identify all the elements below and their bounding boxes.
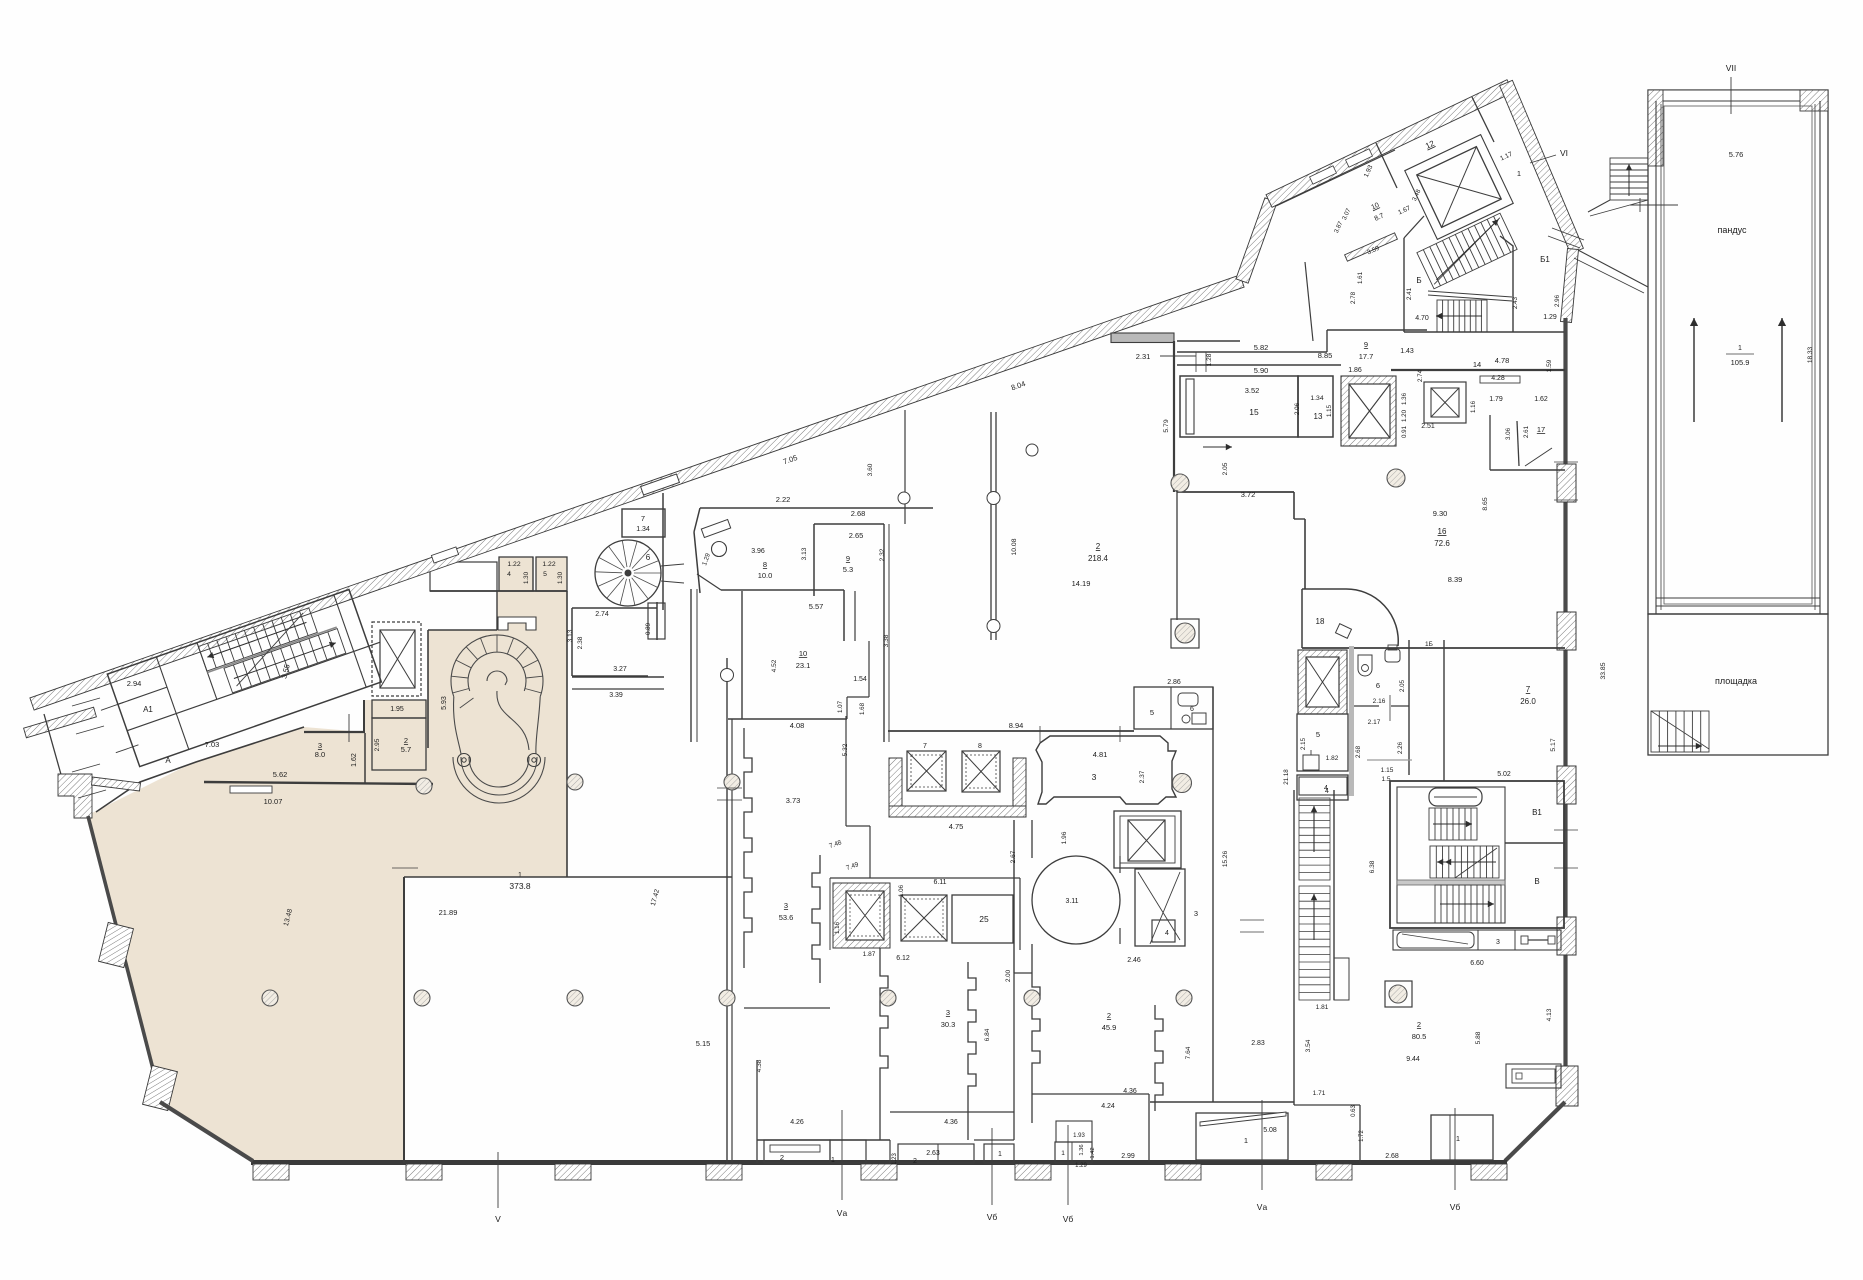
svg-text:1.36: 1.36 — [1401, 392, 1408, 405]
svg-text:5: 5 — [543, 571, 547, 578]
svg-text:2: 2 — [1417, 1020, 1421, 1029]
svg-text:1.06: 1.06 — [898, 884, 905, 897]
svg-text:4.75: 4.75 — [949, 822, 964, 831]
svg-text:3.38: 3.38 — [883, 634, 890, 647]
svg-text:0.89: 0.89 — [645, 622, 652, 635]
svg-text:3.11: 3.11 — [1065, 898, 1078, 905]
svg-text:2: 2 — [780, 1153, 784, 1162]
svg-text:15.26: 15.26 — [1222, 850, 1229, 867]
svg-text:9.44: 9.44 — [1406, 1056, 1420, 1063]
svg-text:4.26: 4.26 — [790, 1119, 804, 1126]
svg-text:1.68: 1.68 — [859, 702, 866, 715]
svg-text:2.65: 2.65 — [849, 531, 864, 540]
svg-text:1.61: 1.61 — [1357, 271, 1364, 284]
svg-text:105.9: 105.9 — [1731, 358, 1750, 367]
svg-text:1.43: 1.43 — [1400, 348, 1414, 355]
svg-text:6.84: 6.84 — [984, 1028, 991, 1041]
svg-text:1.87: 1.87 — [863, 951, 876, 958]
svg-text:4: 4 — [1324, 785, 1328, 792]
svg-text:80.5: 80.5 — [1412, 1032, 1427, 1041]
svg-text:3.13: 3.13 — [567, 629, 574, 642]
svg-text:18: 18 — [1316, 617, 1325, 626]
svg-text:10: 10 — [799, 649, 807, 658]
svg-text:2: 2 — [404, 736, 408, 745]
svg-text:1.71: 1.71 — [1313, 1090, 1326, 1097]
svg-text:4.81: 4.81 — [1093, 750, 1108, 759]
svg-text:14: 14 — [1473, 360, 1481, 369]
svg-text:Vб: Vб — [1450, 1202, 1461, 1212]
svg-text:4.13: 4.13 — [1546, 1008, 1553, 1021]
svg-text:1.62: 1.62 — [351, 753, 358, 767]
svg-text:2.06: 2.06 — [1294, 402, 1301, 415]
svg-text:16: 16 — [1438, 527, 1447, 536]
svg-text:7.64: 7.64 — [1185, 1046, 1192, 1059]
svg-text:В1: В1 — [1532, 808, 1542, 817]
svg-text:72.6: 72.6 — [1434, 539, 1450, 548]
svg-text:1Б: 1Б — [1425, 641, 1433, 648]
svg-text:2.86: 2.86 — [1167, 679, 1181, 686]
svg-text:2.51: 2.51 — [1421, 423, 1435, 430]
svg-text:1.79: 1.79 — [1489, 396, 1503, 403]
svg-text:4.36: 4.36 — [944, 1119, 958, 1126]
svg-text:3: 3 — [946, 1008, 950, 1017]
svg-text:1.30: 1.30 — [557, 571, 564, 584]
svg-text:5.90: 5.90 — [1254, 366, 1269, 375]
svg-text:1.81: 1.81 — [1316, 1004, 1329, 1011]
svg-text:1.16: 1.16 — [834, 921, 841, 934]
svg-text:2.99: 2.99 — [1121, 1153, 1135, 1160]
svg-text:2.63: 2.63 — [926, 1150, 940, 1157]
svg-text:5.3: 5.3 — [843, 565, 853, 574]
svg-text:1.16: 1.16 — [1470, 400, 1477, 413]
svg-text:25: 25 — [979, 914, 989, 924]
svg-text:26.0: 26.0 — [1520, 697, 1536, 706]
svg-text:0.91: 0.91 — [1401, 425, 1408, 438]
svg-text:373.8: 373.8 — [509, 881, 531, 891]
svg-text:2.61: 2.61 — [1523, 425, 1530, 438]
svg-text:3.06: 3.06 — [1505, 427, 1512, 440]
svg-text:8: 8 — [978, 743, 982, 750]
svg-text:1: 1 — [518, 872, 522, 879]
svg-text:2.74: 2.74 — [595, 611, 609, 618]
svg-text:6: 6 — [1376, 681, 1380, 690]
svg-text:2.41: 2.41 — [1406, 287, 1413, 300]
svg-text:6.11: 6.11 — [933, 879, 946, 886]
svg-text:1.23: 1.23 — [892, 1153, 898, 1165]
svg-text:4.08: 4.08 — [790, 721, 805, 730]
svg-text:1.15: 1.15 — [1326, 404, 1333, 417]
svg-text:9: 9 — [846, 554, 850, 563]
svg-text:1: 1 — [998, 1151, 1002, 1158]
svg-text:1.93: 1.93 — [1073, 1133, 1085, 1139]
svg-text:Б1: Б1 — [1540, 255, 1550, 264]
svg-text:6: 6 — [1190, 706, 1194, 713]
svg-text:4.24: 4.24 — [1101, 1103, 1115, 1110]
svg-text:2: 2 — [1107, 1011, 1111, 1020]
svg-text:30.3: 30.3 — [941, 1020, 956, 1029]
svg-text:5.82: 5.82 — [1254, 343, 1269, 352]
svg-text:1.29: 1.29 — [1075, 1163, 1087, 1169]
svg-text:7: 7 — [923, 743, 927, 750]
svg-text:6.60: 6.60 — [1470, 960, 1484, 967]
svg-text:17.7: 17.7 — [1359, 352, 1374, 361]
svg-text:10.0: 10.0 — [758, 571, 773, 580]
svg-text:VI: VI — [1560, 148, 1568, 158]
svg-text:5.62: 5.62 — [273, 770, 288, 779]
svg-text:18.33: 18.33 — [1807, 346, 1814, 363]
svg-text:3.72: 3.72 — [1241, 490, 1256, 499]
svg-text:1.07: 1.07 — [837, 700, 844, 713]
svg-text:3: 3 — [1092, 772, 1097, 782]
svg-text:2.16: 2.16 — [1373, 698, 1386, 705]
svg-text:2.26: 2.26 — [1397, 741, 1404, 754]
svg-text:1.30: 1.30 — [523, 571, 530, 584]
svg-text:1.95: 1.95 — [390, 706, 404, 713]
svg-text:А: А — [165, 756, 171, 765]
svg-text:2.46: 2.46 — [1127, 957, 1141, 964]
svg-text:8.0: 8.0 — [315, 750, 325, 759]
svg-text:1: 1 — [1517, 169, 1521, 178]
svg-text:5.08: 5.08 — [1263, 1127, 1277, 1134]
svg-text:33.85: 33.85 — [1600, 662, 1607, 679]
svg-text:9.30: 9.30 — [1433, 509, 1448, 518]
svg-text:2.15: 2.15 — [1300, 737, 1307, 750]
svg-text:8: 8 — [763, 560, 767, 569]
svg-text:2.32: 2.32 — [879, 548, 886, 561]
svg-text:218.4: 218.4 — [1088, 554, 1109, 563]
svg-text:3.52: 3.52 — [1245, 386, 1260, 395]
svg-text:1.22: 1.22 — [542, 561, 555, 568]
svg-text:2.96: 2.96 — [1554, 294, 1561, 307]
svg-text:4.78: 4.78 — [1495, 356, 1510, 365]
svg-text:1: 1 — [831, 1157, 835, 1164]
svg-text:13: 13 — [1314, 412, 1323, 421]
svg-text:2.05: 2.05 — [1399, 679, 1406, 692]
svg-text:2.00: 2.00 — [1005, 969, 1012, 982]
svg-text:V: V — [495, 1214, 501, 1224]
svg-text:14.19: 14.19 — [1072, 579, 1091, 588]
svg-text:пандус: пандус — [1718, 225, 1747, 235]
svg-text:1: 1 — [1456, 1134, 1460, 1143]
svg-text:3: 3 — [1194, 909, 1198, 918]
svg-text:5.17: 5.17 — [1550, 738, 1557, 751]
svg-text:2.67: 2.67 — [1010, 850, 1017, 863]
svg-text:2.31: 2.31 — [1136, 352, 1151, 361]
svg-text:4.36: 4.36 — [1123, 1088, 1137, 1095]
svg-text:10.07: 10.07 — [264, 797, 283, 806]
svg-text:2.37: 2.37 — [1139, 770, 1146, 783]
svg-text:5.79: 5.79 — [1163, 419, 1170, 432]
svg-text:2.74: 2.74 — [1417, 369, 1424, 382]
svg-text:5.76: 5.76 — [1729, 150, 1744, 159]
svg-text:3.27: 3.27 — [613, 666, 627, 673]
svg-text:А1: А1 — [143, 705, 153, 714]
svg-text:3: 3 — [1496, 939, 1500, 946]
svg-text:3.73: 3.73 — [786, 796, 801, 805]
svg-text:1: 1 — [1061, 1150, 1065, 1157]
svg-text:1.86: 1.86 — [1348, 367, 1362, 374]
svg-text:1.29: 1.29 — [1543, 314, 1557, 321]
svg-text:VII: VII — [1726, 63, 1736, 73]
svg-text:0.63: 0.63 — [1351, 1105, 1357, 1117]
svg-text:7: 7 — [1526, 685, 1531, 694]
svg-text:2.78: 2.78 — [1350, 291, 1357, 304]
svg-text:Vа: Vа — [837, 1208, 848, 1218]
svg-text:5.7: 5.7 — [401, 745, 411, 754]
svg-text:23.1: 23.1 — [796, 661, 811, 670]
svg-text:2.22: 2.22 — [776, 495, 791, 504]
svg-text:1.42: 1.42 — [1090, 1147, 1096, 1158]
svg-text:15: 15 — [1249, 407, 1259, 417]
svg-text:2: 2 — [1096, 542, 1101, 551]
svg-text:1.82: 1.82 — [1326, 755, 1339, 762]
svg-text:3: 3 — [318, 741, 322, 750]
svg-text:1: 1 — [1244, 1136, 1248, 1145]
svg-text:1.96: 1.96 — [1061, 831, 1068, 844]
svg-text:1.28: 1.28 — [1206, 353, 1213, 366]
svg-text:3.13: 3.13 — [801, 547, 808, 560]
svg-text:4: 4 — [507, 571, 511, 578]
svg-text:6: 6 — [646, 553, 651, 562]
svg-text:53.6: 53.6 — [779, 913, 794, 922]
svg-text:2.68: 2.68 — [1355, 745, 1362, 758]
svg-text:10.08: 10.08 — [1011, 538, 1018, 555]
svg-text:5: 5 — [1150, 708, 1154, 717]
svg-text:В: В — [1534, 877, 1539, 886]
svg-text:21.89: 21.89 — [439, 908, 458, 917]
svg-text:5.02: 5.02 — [1497, 771, 1511, 778]
svg-text:1.59: 1.59 — [1546, 359, 1553, 372]
svg-text:5.15: 5.15 — [696, 1039, 711, 1048]
svg-text:1: 1 — [1738, 345, 1742, 352]
svg-text:8.65: 8.65 — [1482, 497, 1489, 510]
svg-text:8.39: 8.39 — [1448, 575, 1463, 584]
svg-text:2.05: 2.05 — [1222, 462, 1229, 475]
svg-text:Б: Б — [1416, 276, 1421, 285]
svg-text:7.03: 7.03 — [205, 740, 220, 749]
svg-text:5.57: 5.57 — [809, 602, 824, 611]
svg-text:5.93: 5.93 — [441, 696, 448, 710]
svg-text:9: 9 — [1364, 340, 1368, 349]
svg-text:6.38: 6.38 — [1369, 860, 1376, 873]
svg-text:3.96: 3.96 — [751, 548, 765, 555]
svg-text:2.38: 2.38 — [577, 636, 584, 649]
svg-text:5: 5 — [1316, 730, 1320, 739]
svg-text:1.36: 1.36 — [1079, 1144, 1085, 1155]
svg-text:4.70: 4.70 — [1415, 315, 1429, 322]
svg-text:2.17: 2.17 — [1368, 719, 1381, 726]
svg-text:2.68: 2.68 — [851, 509, 866, 518]
svg-text:2: 2 — [913, 1158, 917, 1165]
svg-text:45.9: 45.9 — [1102, 1023, 1117, 1032]
svg-text:2.83: 2.83 — [1251, 1040, 1265, 1047]
svg-text:2.68: 2.68 — [1385, 1153, 1399, 1160]
svg-text:1.54: 1.54 — [853, 676, 867, 683]
svg-text:1.20: 1.20 — [1401, 409, 1408, 422]
svg-text:1.62: 1.62 — [1534, 396, 1548, 403]
svg-text:Vб: Vб — [987, 1212, 998, 1222]
svg-text:2.43: 2.43 — [1512, 296, 1519, 309]
svg-text:4.52: 4.52 — [771, 659, 778, 672]
svg-text:площадка: площадка — [1715, 676, 1757, 686]
svg-text:17: 17 — [1537, 425, 1545, 434]
svg-text:1.22: 1.22 — [507, 561, 520, 568]
svg-text:7: 7 — [641, 514, 645, 523]
svg-text:2.94: 2.94 — [127, 679, 142, 688]
svg-text:1.34: 1.34 — [1310, 395, 1323, 402]
svg-text:3.54: 3.54 — [1305, 1039, 1312, 1052]
svg-text:Vа: Vа — [1257, 1202, 1268, 1212]
svg-text:3.60: 3.60 — [867, 463, 874, 476]
svg-text:8.94: 8.94 — [1009, 721, 1024, 730]
svg-text:5.88: 5.88 — [1475, 1031, 1482, 1044]
svg-text:3: 3 — [784, 901, 788, 910]
svg-text:3.39: 3.39 — [609, 692, 623, 699]
svg-text:1.15: 1.15 — [1381, 767, 1394, 774]
svg-text:21.18: 21.18 — [1283, 769, 1290, 785]
svg-text:6.12: 6.12 — [896, 955, 910, 962]
svg-text:2.95: 2.95 — [374, 738, 381, 751]
svg-text:8.85: 8.85 — [1318, 351, 1333, 360]
svg-text:Vб: Vб — [1063, 1214, 1074, 1224]
svg-text:4: 4 — [1165, 930, 1169, 937]
svg-text:1.34: 1.34 — [636, 526, 650, 533]
